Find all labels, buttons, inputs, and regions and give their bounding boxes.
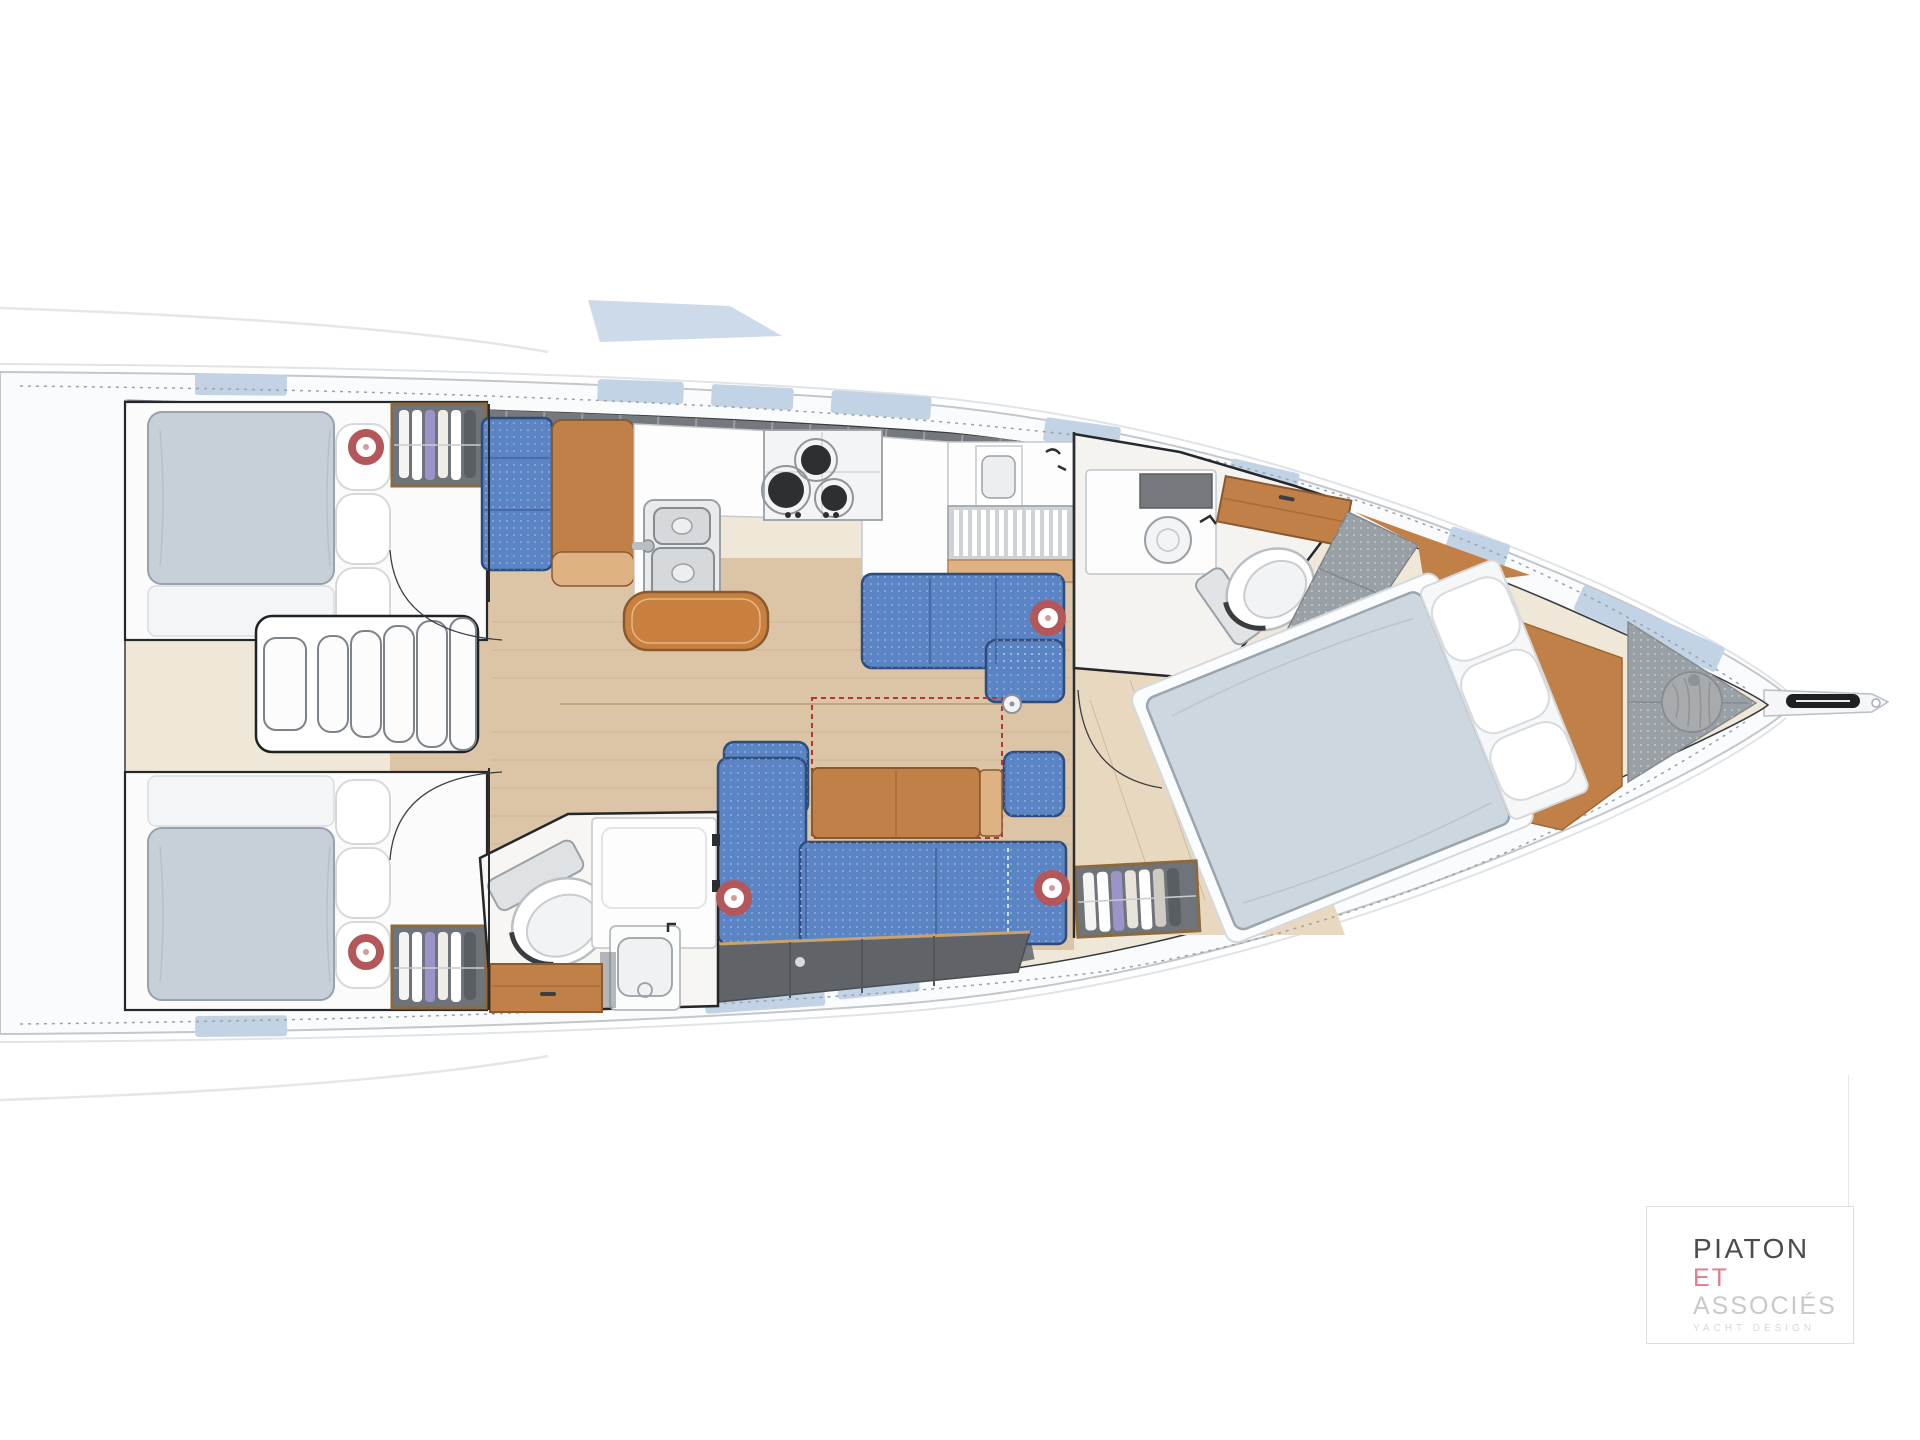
deck-hatch-strip	[711, 384, 794, 410]
nav-station	[482, 418, 634, 586]
head-aft	[480, 812, 720, 1012]
head-sink	[610, 924, 680, 1010]
hatch-ring-center	[1049, 885, 1055, 891]
hanging-locker-forward	[1074, 861, 1199, 937]
hatch-ring-center	[363, 949, 369, 955]
deck-hatch-strip	[195, 1015, 287, 1037]
designer-logo: PIATON ET ASSOCIÉS YACHT DESIGN	[1646, 1206, 1854, 1344]
galley-sink	[632, 500, 720, 602]
bag-knot	[1688, 674, 1700, 686]
hanging-locker	[392, 926, 486, 1008]
dish-rack	[948, 506, 1074, 582]
hatch-ring-center	[731, 895, 737, 901]
deck-hatch-strip	[597, 379, 684, 404]
locker-button	[795, 957, 805, 967]
bowsprit	[1764, 690, 1888, 716]
floor-plan-drawing	[0, 0, 1920, 1440]
aft-cabin-starboard	[125, 772, 487, 1010]
yacht-floor-plan: PIATON ET ASSOCIÉS YACHT DESIGN	[0, 0, 1920, 1440]
galley-bench	[624, 592, 768, 650]
logo-tagline: YACHT DESIGN	[1693, 1323, 1853, 1334]
counter-top-unit	[1140, 474, 1212, 508]
sail-bag	[1662, 672, 1722, 732]
coachroof-hatch	[588, 300, 782, 342]
bow-fitting-hole	[1872, 699, 1880, 707]
head-drawers	[490, 964, 602, 1012]
hatch-ring-center	[363, 444, 369, 450]
berth-foot-cushion	[148, 776, 334, 826]
berth-mattress	[148, 828, 334, 1000]
logo-name-1: PIATON	[1693, 1233, 1853, 1264]
berth-mattress	[148, 412, 334, 584]
page-rule-line	[1848, 1075, 1849, 1206]
table-leaf	[980, 770, 1002, 836]
round-basin	[1145, 517, 1191, 563]
deck-hatch-strip	[195, 374, 287, 396]
stove	[762, 430, 882, 520]
door-hinge	[712, 834, 720, 846]
hatch-ring-center	[1045, 615, 1051, 621]
companionway-steps	[256, 616, 478, 752]
chart-table-edge	[552, 552, 634, 586]
aft-cabin-port	[125, 402, 487, 640]
logo-name-3: ASSOCIÉS	[1693, 1292, 1853, 1320]
mast-post	[1003, 695, 1021, 713]
chart-table	[552, 420, 634, 570]
logo-name-2: ET	[1693, 1264, 1853, 1292]
hanging-locker	[392, 404, 486, 486]
